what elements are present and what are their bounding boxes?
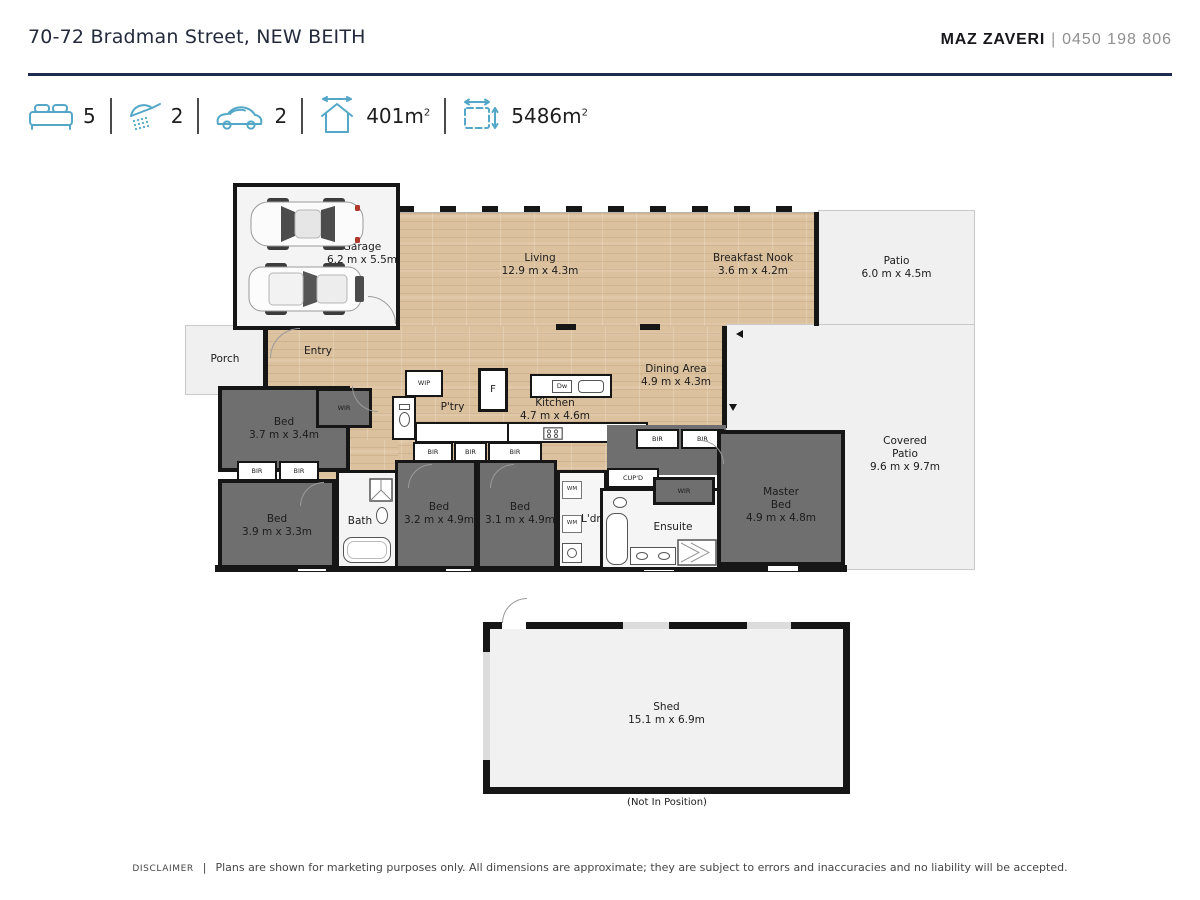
stats-divider: [301, 98, 303, 134]
porch-label: Porch: [186, 353, 264, 366]
shed-note: (Not In Position): [587, 797, 747, 809]
bed3-room: Bed3.2 m x 4.9m: [395, 460, 477, 569]
washing-machine: WM: [562, 515, 582, 533]
dishwasher-box: Dw: [552, 380, 572, 393]
stat-house-area: 401m2: [317, 96, 430, 136]
bath-room: Bath: [336, 470, 398, 569]
agent-phone: 0450 198 806: [1062, 31, 1172, 48]
toilet-tank-icon: [399, 404, 410, 410]
bench-divider: [507, 424, 509, 441]
tub-basin: [567, 548, 577, 558]
porch-room: Porch: [185, 325, 265, 395]
stat-showers: 2: [126, 99, 184, 133]
vanity-icon: [630, 547, 676, 565]
house-area-icon: [317, 96, 357, 136]
shed-window-gap: [483, 652, 490, 760]
bed4-label: Bed3.1 m x 4.9m: [470, 501, 570, 527]
agent-separator: |: [1045, 31, 1062, 48]
car-top-view-1: [249, 197, 365, 251]
shed-window-gap: [747, 622, 791, 629]
bed4-room: Bed3.1 m x 4.9m: [477, 460, 557, 569]
beds-count: 5: [83, 104, 96, 128]
agent-info: MAZ ZAVERI|0450 198 806: [941, 31, 1172, 49]
wc-room: [392, 396, 416, 440]
cupboard: CUP'D: [607, 468, 659, 488]
covered-patio-label: CoveredPatio9.6 m x 9.7m: [845, 435, 965, 473]
stats-divider: [197, 98, 199, 134]
master-wir: WIR: [653, 477, 715, 505]
shed-door-arc: [502, 598, 527, 623]
shed-room: Shed15.1 m x 6.9m: [483, 622, 850, 794]
sink-basin: [636, 552, 648, 560]
agent-name: MAZ ZAVERI: [941, 31, 1046, 48]
master-bed-room: MasterBed4.9 m x 4.8m: [717, 430, 845, 566]
disclaimer-separator: |: [203, 861, 207, 874]
shed-label: Shed15.1 m x 6.9m: [490, 701, 843, 727]
bath-label: Bath: [339, 515, 381, 528]
disclaimer-text: Plans are shown for marketing purposes o…: [215, 861, 1067, 874]
toilet-icon: [613, 497, 627, 508]
sink-basin: [658, 552, 670, 560]
showers-count: 2: [171, 104, 184, 128]
bed-icon: [28, 100, 74, 132]
disclaimer-label: DISCLAIMER: [132, 864, 193, 874]
property-stats: 5 2 2: [28, 94, 588, 138]
ensuite-label: Ensuite: [633, 521, 713, 534]
patio-label: Patio6.0 m x 4.5m: [819, 255, 974, 281]
wip-pantry: WIP: [405, 370, 443, 397]
bir-closet: BIR: [279, 461, 319, 481]
dining-label: Dining Area4.9 m x 4.3m: [626, 363, 726, 389]
bir-closet: BIR: [636, 429, 679, 449]
entry-wall: [263, 325, 268, 388]
laundry-tub-icon: [562, 543, 582, 563]
sink-icon: [578, 380, 604, 393]
page-title: 70-72 Bradman Street, NEW BEITH: [28, 26, 366, 48]
toilet-icon: [399, 412, 410, 427]
stat-beds: 5: [28, 100, 96, 132]
master-bed-label: MasterBed4.9 m x 4.8m: [721, 486, 841, 524]
fridge-box: F: [478, 368, 508, 412]
door-arrow: [736, 330, 743, 338]
disclaimer: DISCLAIMER | Plans are shown for marketi…: [0, 861, 1200, 874]
window-gap: [768, 566, 798, 571]
car-top-view-2: [247, 261, 367, 317]
pantry-label: P'try: [425, 401, 480, 414]
car-icon: [213, 100, 265, 132]
patio-room: Patio6.0 m x 4.5m: [818, 210, 975, 326]
entry-label: Entry: [293, 345, 343, 358]
kitchen-island: Dw: [530, 374, 612, 398]
stats-divider: [444, 98, 446, 134]
kitchen-label: Kitchen4.7 m x 4.6m: [510, 397, 600, 423]
shower-stall-icon: [369, 478, 393, 502]
shed-door-gap: [502, 622, 526, 629]
wall-stub: [640, 324, 660, 330]
bathtub-icon: [606, 513, 628, 565]
toilet-icon: [376, 507, 388, 524]
stat-land-area: 5486m2: [460, 98, 588, 134]
stat-cars: 2: [213, 100, 287, 132]
living-label: Living12.9 m x 4.3m: [460, 252, 620, 278]
shower-stall-icon: [677, 539, 717, 566]
bir-closet: BIR: [237, 461, 277, 481]
land-area-icon: [460, 98, 502, 134]
stats-divider: [110, 98, 112, 134]
shower-icon: [126, 99, 162, 133]
floorplan-page: 70-72 Bradman Street, NEW BEITH MAZ ZAVE…: [0, 0, 1200, 900]
bed2-label: Bed3.9 m x 3.3m: [222, 513, 332, 539]
land-area-value: 5486m2: [511, 104, 588, 128]
door-arrow: [729, 404, 737, 411]
bathtub-icon: [343, 537, 391, 563]
washing-machine: WM: [562, 481, 582, 499]
cars-count: 2: [274, 104, 287, 128]
shed-window-gap: [623, 622, 669, 629]
bathtub-inner: [347, 541, 387, 559]
cooktop-icon: [543, 427, 563, 440]
wall-stub: [556, 324, 576, 330]
living-window-wall: [398, 206, 818, 213]
header-divider: [28, 73, 1172, 76]
breakfast-nook-label: Breakfast Nook3.6 m x 4.2m: [683, 252, 823, 278]
house-area-value: 401m2: [366, 104, 430, 128]
